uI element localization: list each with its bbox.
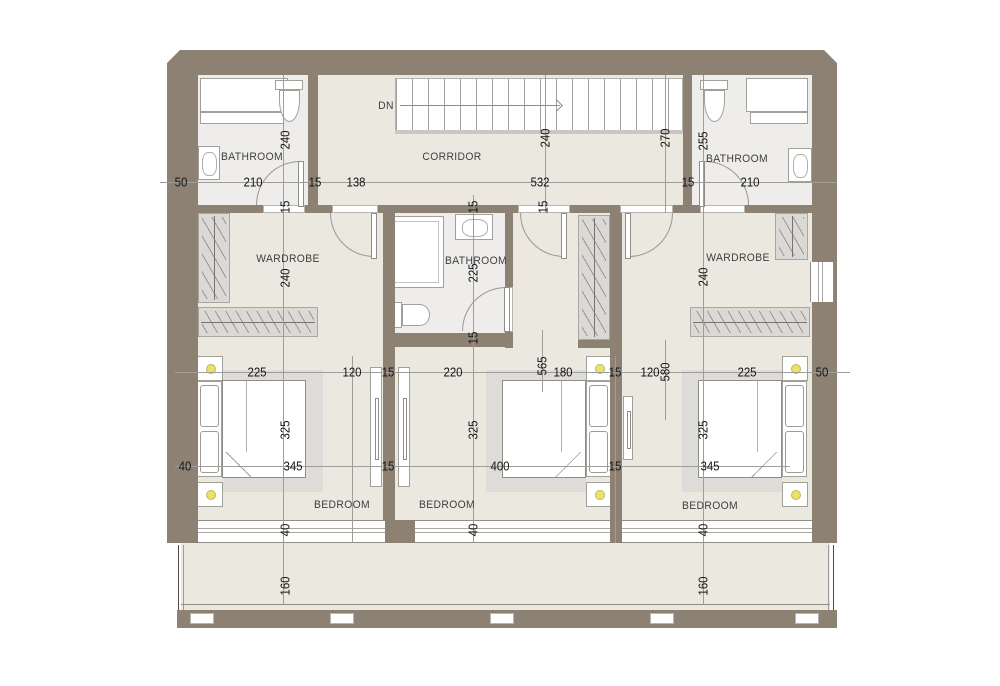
dim-label: 325	[696, 420, 711, 439]
wall-corridor-south-2	[305, 205, 332, 213]
dim-label: 325	[466, 420, 481, 439]
dim-label: 220	[443, 365, 462, 380]
window-glass	[622, 528, 812, 533]
room-label-wardrobe-right: WARDROBE	[706, 252, 770, 264]
door-opening-bathroom-right	[700, 205, 745, 213]
wardrobe-left-rack-horizontal	[198, 307, 318, 337]
window-bedroom-middle	[415, 520, 610, 543]
dim-label: 15	[609, 365, 622, 380]
balcony-rail-left	[178, 545, 184, 612]
dim-label: 345	[283, 459, 302, 474]
pillow	[200, 385, 219, 427]
room-label-bedroom-right: BEDROOM	[682, 500, 738, 512]
door-leaf-bathroom-right	[699, 161, 705, 207]
dim-label: 40	[179, 459, 192, 474]
dim-label: 240	[278, 268, 293, 287]
room-label-bedroom-left: BEDROOM	[314, 499, 370, 511]
window-post-right	[610, 520, 622, 543]
wall-corridor-south-6	[745, 205, 812, 213]
dimension-line-v2	[352, 356, 353, 543]
room-label-corridor: CORRIDOR	[422, 151, 481, 163]
wardrobe-right-rack-horizontal	[690, 307, 810, 337]
shower-shelf-right-bathroom	[750, 112, 808, 124]
dim-label: 210	[243, 175, 262, 190]
dim-label: 15	[466, 332, 481, 345]
hanger-rail	[693, 322, 807, 323]
wardrobe-left-rack-vertical	[198, 213, 230, 303]
window-east-wall	[810, 262, 834, 302]
dim-label: 400	[490, 459, 509, 474]
dim-label: 270	[658, 128, 673, 147]
wall-rack-cap	[578, 340, 610, 348]
hanger-rail	[201, 322, 315, 323]
mirror-line	[627, 411, 631, 449]
wall-corridor-south-5	[673, 205, 700, 213]
wall-bathmid-south	[383, 333, 513, 347]
wall-bathmid-east-1	[505, 213, 513, 287]
blanket-fold	[750, 452, 780, 477]
dim-label: 15	[278, 201, 293, 214]
room-label-bathroom-right: BATHROOM	[706, 153, 768, 165]
wall-corridor-south-4	[570, 205, 620, 213]
dim-label: 225	[247, 365, 266, 380]
toilet-bowl-middle-bathroom	[402, 304, 430, 326]
sink-middle-bathroom	[455, 214, 493, 240]
door-leaf-bathroom-middle	[504, 287, 510, 332]
sink-right-bathroom	[788, 148, 812, 182]
dim-label: 255	[696, 131, 711, 150]
stairs-down-label: DN	[378, 100, 394, 112]
dim-label: 225	[737, 365, 756, 380]
dim-label: 15	[682, 175, 695, 190]
blanket-fold	[223, 452, 255, 477]
closet-middle-rack	[578, 215, 610, 340]
dim-label: 15	[382, 365, 395, 380]
door-leaf-wardrobe-left	[371, 213, 377, 259]
parapet-window-4	[650, 613, 674, 624]
dim-label: 120	[342, 365, 361, 380]
window-bedroom-right	[622, 520, 812, 543]
room-label-bedroom-middle: BEDROOM	[419, 499, 475, 511]
mirror-line	[375, 398, 379, 460]
nightstand-left-top	[197, 356, 223, 381]
dim-label: 180	[553, 365, 572, 380]
wall-corridor-south-3	[378, 205, 518, 213]
hanger-rail	[594, 218, 595, 337]
wall-top	[167, 50, 837, 75]
window-glass	[415, 528, 610, 533]
dim-label: 40	[466, 524, 481, 537]
nightstand-right-bottom	[782, 482, 808, 507]
door-leaf-wardrobe-right	[625, 213, 631, 259]
stair-direction-line	[400, 105, 560, 106]
dim-label: 240	[696, 267, 711, 286]
dim-label: 225	[466, 263, 481, 282]
blanket-fold	[554, 452, 584, 477]
dim-label: 50	[816, 365, 829, 380]
mirror-line	[403, 398, 407, 460]
wall-corridor-south-1	[198, 205, 263, 213]
dim-label: 565	[535, 356, 550, 375]
lamp	[595, 490, 605, 500]
parapet-window-1	[190, 613, 214, 624]
pillow	[589, 385, 608, 427]
parapet-window-2	[330, 613, 354, 624]
dim-label: 160	[278, 576, 293, 595]
nightstand-left-bottom	[197, 482, 223, 507]
dim-label: 40	[696, 524, 711, 537]
window-post-left	[385, 520, 415, 543]
balcony-rail-right	[828, 545, 834, 612]
sink-bowl	[793, 154, 808, 178]
wall-panel-mirror	[398, 367, 410, 487]
door-opening-wardrobe-left	[332, 205, 378, 213]
dim-label: 40	[278, 524, 293, 537]
dim-label: 240	[278, 130, 293, 149]
parapet-window-5	[795, 613, 819, 624]
dim-label: 532	[530, 175, 549, 190]
shower-middle-bathroom	[388, 216, 444, 288]
room-label-wardrobe-left: WARDROBE	[256, 253, 320, 265]
room-label-bathroom-left: BATHROOM	[221, 151, 283, 163]
dim-label: 240	[538, 128, 553, 147]
pillow	[785, 385, 804, 427]
door-leaf-bathroom-left	[298, 161, 304, 207]
shower-right-bathroom	[746, 78, 808, 112]
dim-label: 15	[536, 201, 551, 214]
window-glass	[818, 262, 823, 302]
dim-label: 50	[175, 175, 188, 190]
dim-label: 345	[700, 459, 719, 474]
dim-label: 15	[309, 175, 322, 190]
nightstand-right-top	[782, 356, 808, 381]
dimension-line-v5	[615, 356, 616, 543]
shower-shelf-left-bathroom	[200, 112, 284, 124]
floor-plan: 50 210 15 138 532 15 210 225 120 15 220 …	[0, 0, 1000, 686]
wall-panel-mirror	[370, 367, 382, 487]
wardrobe-right-rack-corner	[775, 213, 808, 260]
dim-label: 580	[658, 362, 673, 381]
shower-tray	[393, 221, 439, 283]
wall-panel-mirror	[623, 396, 633, 460]
dim-label: 138	[346, 175, 365, 190]
hanger-rail	[214, 216, 215, 300]
dim-label: 15	[382, 459, 395, 474]
dimension-line-h3	[175, 466, 790, 467]
lamp	[206, 490, 216, 500]
dim-label: 325	[278, 420, 293, 439]
dim-label: 210	[740, 175, 759, 190]
dimension-line-v3	[473, 195, 474, 543]
door-leaf-bedroom-middle	[561, 213, 567, 259]
dim-label: 15	[466, 201, 481, 214]
sink-bowl	[202, 152, 217, 176]
toilet-tank-right-bathroom	[700, 80, 728, 90]
toilet-tank-left-bathroom	[275, 80, 303, 90]
parapet-window-3	[490, 613, 514, 624]
dim-label: 160	[696, 576, 711, 595]
wall-right	[812, 75, 837, 543]
dim-label: 15	[609, 459, 622, 474]
sink-left-bathroom	[198, 146, 220, 180]
lamp	[791, 490, 801, 500]
nightstand-middle-bottom	[586, 482, 612, 507]
sink-bowl	[462, 219, 488, 237]
staircase	[395, 78, 683, 134]
hanger-rail	[792, 216, 793, 257]
